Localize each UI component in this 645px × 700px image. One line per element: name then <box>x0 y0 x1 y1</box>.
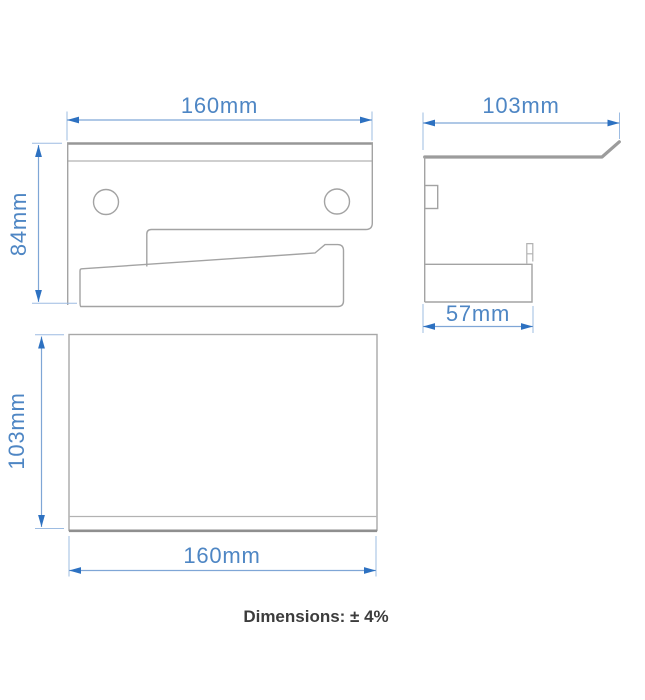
arrow-right-icon <box>608 120 620 127</box>
front-roll-bar-outline <box>80 245 344 307</box>
side-tray-outline <box>425 264 532 302</box>
top-width-label: 160mm <box>183 543 260 568</box>
front-width-dimension: 160mm <box>67 93 372 141</box>
arrow-right-icon <box>360 117 372 124</box>
arrow-down-icon <box>35 290 42 302</box>
top-depth-dimension: 103mm <box>4 335 64 529</box>
front-height-label: 84mm <box>6 192 31 256</box>
front-screw-hole-left <box>94 190 119 215</box>
side-view <box>425 142 620 302</box>
side-base-depth-dimension: 57mm <box>423 301 533 333</box>
arrow-up-icon <box>38 337 45 349</box>
arrow-down-icon <box>38 515 45 527</box>
side-base-depth-label: 57mm <box>446 301 510 326</box>
top-depth-label: 103mm <box>4 392 29 469</box>
arrow-right-icon <box>521 323 533 330</box>
front-screw-hole-right <box>325 189 350 214</box>
side-shelf-profile <box>425 142 620 157</box>
technical-drawing-page: 160mm 84mm 103mm <box>0 0 645 700</box>
top-view-outline <box>69 335 377 531</box>
side-mount-tab <box>425 186 438 209</box>
top-width-dimension: 160mm <box>69 536 376 577</box>
front-height-dimension: 84mm <box>6 143 77 303</box>
front-view <box>67 143 373 307</box>
side-depth-dimension: 103mm <box>423 93 620 150</box>
front-width-label: 160mm <box>181 93 258 118</box>
arrow-left-icon <box>423 323 435 330</box>
arrow-up-icon <box>35 145 42 157</box>
technical-drawing: 160mm 84mm 103mm <box>0 0 645 700</box>
top-view <box>69 335 377 531</box>
arrow-left-icon <box>67 117 79 124</box>
side-clip-detail <box>527 244 533 264</box>
arrow-right-icon <box>364 567 376 574</box>
arrow-left-icon <box>423 120 435 127</box>
side-depth-label: 103mm <box>482 93 559 118</box>
tolerance-note: Dimensions: ± 4% <box>243 607 388 626</box>
arrow-left-icon <box>69 567 81 574</box>
